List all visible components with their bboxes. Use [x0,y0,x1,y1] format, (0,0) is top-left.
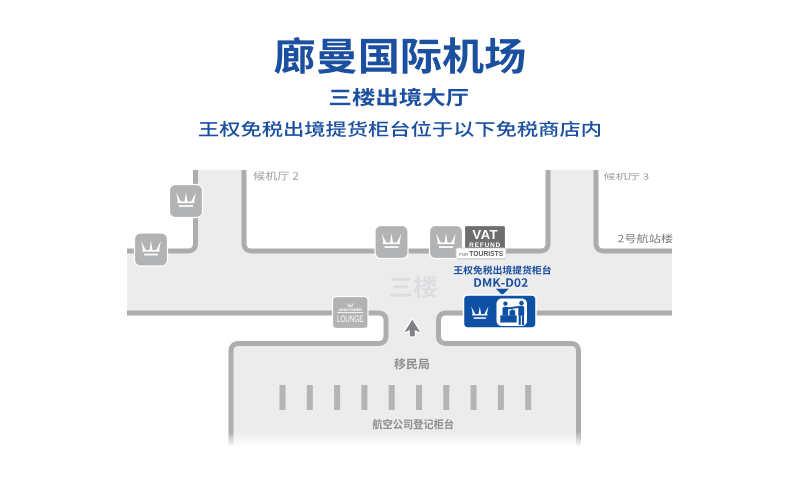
svg-text:LOUNGE: LOUNGE [337,314,364,324]
svg-text:VAT: VAT [472,227,498,242]
svg-text:KING POWER: KING POWER [339,308,362,312]
svg-text:FOR TOURISTS: FOR TOURISTS [459,251,503,258]
